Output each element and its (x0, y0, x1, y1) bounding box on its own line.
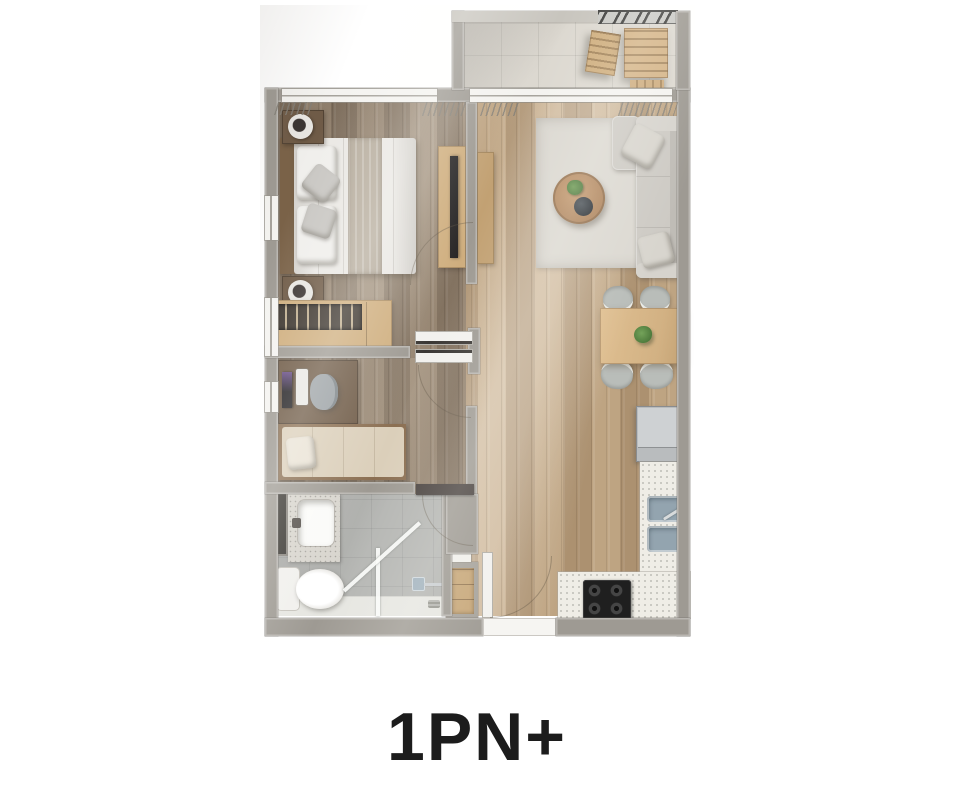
window (282, 89, 437, 102)
wall-bedroom-study (265, 346, 410, 358)
balcony-wall-top (452, 11, 598, 22)
plant-icon (634, 326, 652, 343)
toilet (296, 569, 344, 609)
wall-bottom (556, 618, 690, 636)
table-lamp-icon (288, 114, 313, 139)
wall-left (265, 88, 278, 636)
floor-drain-icon (428, 600, 440, 608)
fridge-door (638, 408, 682, 448)
curtain (480, 103, 520, 116)
window (265, 382, 278, 412)
bed-pillow (285, 436, 316, 471)
sink-basin (298, 500, 334, 546)
burner-icon (610, 602, 623, 615)
wardrobe-divider (366, 302, 367, 346)
wall-right (677, 88, 690, 636)
decor-tray (574, 197, 593, 216)
window (265, 298, 278, 356)
window (265, 196, 278, 240)
sliding-door-window (470, 89, 672, 102)
curtain (274, 102, 316, 115)
burner-icon (610, 584, 623, 597)
wall-study-bath (265, 482, 415, 494)
kitchen-sink (647, 526, 681, 552)
wall-bottom (265, 618, 483, 636)
throw-blanket (348, 138, 382, 274)
burner-icon (588, 584, 601, 597)
faucet-icon (292, 518, 301, 528)
outdoor-table (624, 28, 668, 78)
desk-chair (310, 374, 338, 410)
balcony-wall-left (452, 11, 464, 90)
curtain (422, 102, 471, 116)
hanging-clothes (274, 304, 362, 330)
balcony-wall-right (676, 11, 690, 90)
unit-title: 1PN+ (0, 698, 954, 776)
burner-icon (588, 602, 601, 615)
monitor (282, 372, 292, 408)
keyboard (296, 369, 308, 405)
curtain (618, 102, 679, 116)
balcony-railing (598, 10, 678, 24)
entry-threshold (483, 618, 556, 636)
floor-plan-page: 1PN+ (0, 0, 954, 800)
